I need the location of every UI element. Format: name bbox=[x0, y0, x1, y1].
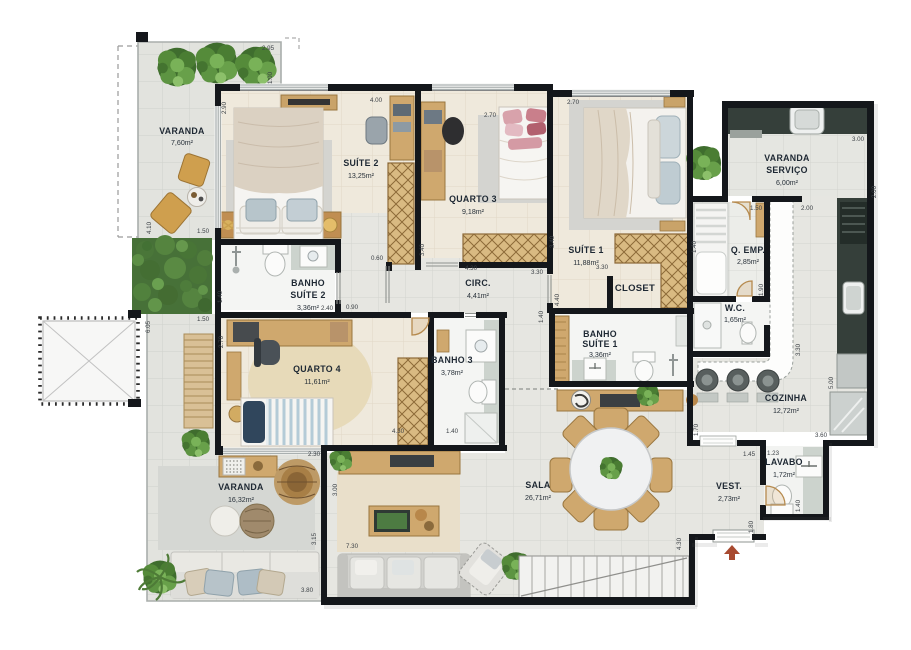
svg-text:3.40: 3.40 bbox=[419, 243, 426, 256]
svg-text:CLOSET: CLOSET bbox=[615, 283, 655, 294]
svg-text:3.30: 3.30 bbox=[596, 264, 609, 271]
svg-text:6,00m²: 6,00m² bbox=[776, 179, 799, 187]
svg-text:3.80: 3.80 bbox=[301, 587, 314, 594]
svg-text:SUÍTE 1: SUÍTE 1 bbox=[568, 245, 603, 255]
svg-text:2,85m²: 2,85m² bbox=[737, 258, 760, 266]
svg-text:1.80: 1.80 bbox=[748, 520, 755, 533]
svg-text:4.40: 4.40 bbox=[554, 293, 561, 306]
svg-text:2.70: 2.70 bbox=[567, 99, 580, 106]
svg-text:SUÍTE 2: SUÍTE 2 bbox=[343, 158, 378, 168]
svg-text:SERVIÇO: SERVIÇO bbox=[766, 165, 808, 175]
svg-text:3,36m²: 3,36m² bbox=[589, 351, 612, 359]
svg-text:2.70: 2.70 bbox=[484, 112, 497, 119]
svg-text:16,32m²: 16,32m² bbox=[228, 496, 255, 504]
svg-text:W.C.: W.C. bbox=[725, 303, 745, 313]
svg-text:3.15: 3.15 bbox=[311, 532, 318, 545]
svg-text:1.40: 1.40 bbox=[446, 428, 459, 435]
svg-text:VEST.: VEST. bbox=[716, 481, 742, 491]
svg-text:3.30: 3.30 bbox=[795, 343, 802, 356]
svg-text:4.30: 4.30 bbox=[676, 537, 683, 550]
svg-text:2.70: 2.70 bbox=[218, 335, 225, 348]
svg-text:4.30: 4.30 bbox=[465, 265, 478, 272]
svg-text:1.23: 1.23 bbox=[767, 450, 780, 457]
svg-text:13,25m²: 13,25m² bbox=[348, 172, 375, 180]
svg-text:3.00: 3.00 bbox=[852, 136, 865, 143]
svg-text:1.50: 1.50 bbox=[197, 316, 210, 323]
svg-text:5.00: 5.00 bbox=[828, 376, 835, 389]
svg-text:2.95: 2.95 bbox=[262, 45, 275, 52]
svg-text:LAVABO: LAVABO bbox=[765, 457, 803, 467]
svg-text:Q. EMP.: Q. EMP. bbox=[731, 245, 765, 255]
svg-text:1.45: 1.45 bbox=[743, 451, 756, 458]
svg-text:1.40: 1.40 bbox=[691, 240, 698, 253]
svg-text:2.30: 2.30 bbox=[308, 451, 321, 458]
svg-text:4.30: 4.30 bbox=[392, 428, 405, 435]
svg-text:CIRC.: CIRC. bbox=[465, 278, 490, 288]
svg-text:1,72m²: 1,72m² bbox=[773, 471, 796, 479]
svg-text:2.40: 2.40 bbox=[321, 305, 334, 312]
svg-text:SUÍTE 1: SUÍTE 1 bbox=[582, 339, 617, 349]
svg-text:BANHO: BANHO bbox=[583, 329, 617, 339]
svg-text:VARANDA: VARANDA bbox=[764, 153, 810, 163]
svg-text:3,36m²: 3,36m² bbox=[297, 304, 320, 312]
svg-text:SUÍTE 2: SUÍTE 2 bbox=[290, 290, 325, 300]
svg-text:12,72m²: 12,72m² bbox=[773, 407, 800, 415]
svg-text:1.40: 1.40 bbox=[217, 290, 224, 303]
svg-text:3.00: 3.00 bbox=[332, 483, 339, 496]
svg-text:4.10: 4.10 bbox=[146, 221, 153, 234]
svg-text:3.30: 3.30 bbox=[531, 269, 544, 276]
svg-text:QUARTO 3: QUARTO 3 bbox=[449, 194, 497, 204]
svg-text:3.60: 3.60 bbox=[815, 432, 828, 439]
svg-text:0.60: 0.60 bbox=[371, 255, 384, 262]
svg-text:1.40: 1.40 bbox=[795, 499, 802, 512]
svg-text:7.30: 7.30 bbox=[346, 543, 359, 550]
svg-text:6.05: 6.05 bbox=[145, 320, 152, 333]
svg-text:BANHO 3: BANHO 3 bbox=[431, 355, 473, 365]
svg-text:1.50: 1.50 bbox=[197, 228, 210, 235]
svg-text:1.50: 1.50 bbox=[750, 205, 763, 212]
svg-text:1.40: 1.40 bbox=[538, 310, 545, 323]
svg-text:VARANDA: VARANDA bbox=[159, 126, 205, 136]
svg-text:4,41m²: 4,41m² bbox=[467, 292, 490, 300]
svg-text:1.00: 1.00 bbox=[267, 71, 274, 84]
svg-text:2.00: 2.00 bbox=[871, 185, 878, 198]
svg-text:4.00: 4.00 bbox=[370, 97, 383, 104]
svg-text:2,73m²: 2,73m² bbox=[718, 495, 741, 503]
svg-text:1,65m²: 1,65m² bbox=[724, 316, 747, 324]
svg-text:2.90: 2.90 bbox=[221, 101, 228, 114]
svg-text:7,60m²: 7,60m² bbox=[171, 139, 194, 147]
svg-text:1.70: 1.70 bbox=[693, 423, 700, 436]
svg-text:1.90: 1.90 bbox=[758, 283, 765, 296]
svg-text:VARANDA: VARANDA bbox=[218, 482, 264, 492]
svg-text:QUARTO 4: QUARTO 4 bbox=[293, 364, 341, 374]
svg-text:26,71m²: 26,71m² bbox=[525, 494, 552, 502]
svg-text:3,78m²: 3,78m² bbox=[441, 369, 464, 377]
svg-text:0.90: 0.90 bbox=[346, 304, 359, 311]
svg-text:3.40: 3.40 bbox=[549, 235, 556, 248]
svg-text:SALA: SALA bbox=[525, 480, 550, 490]
svg-text:11,61m²: 11,61m² bbox=[304, 378, 330, 386]
svg-text:COZINHA: COZINHA bbox=[765, 393, 808, 403]
svg-text:9,18m²: 9,18m² bbox=[462, 208, 485, 216]
svg-text:2.00: 2.00 bbox=[801, 205, 814, 212]
svg-text:BANHO: BANHO bbox=[291, 278, 325, 288]
